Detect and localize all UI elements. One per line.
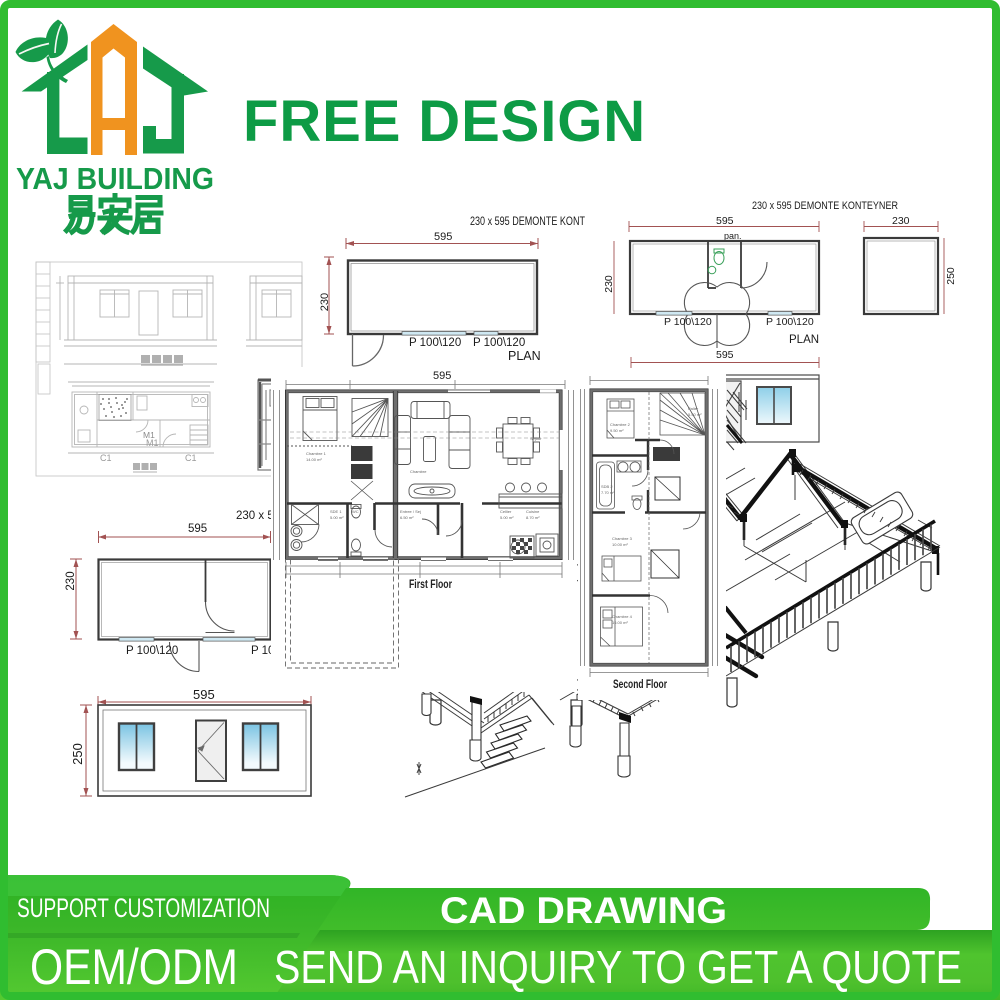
- svg-text:SDB 2: SDB 2: [601, 484, 613, 489]
- svg-text:P 100\120: P 100\120: [766, 316, 814, 328]
- svg-text:230 x 595 DEMONTE KONTEYNER: 230 x 595 DEMONTE KONTEYNER: [752, 200, 898, 212]
- svg-text:Entree / Sej: Entree / Sej: [400, 509, 421, 514]
- svg-text:Cellier: Cellier: [500, 509, 512, 514]
- svg-text:WC: WC: [352, 509, 359, 514]
- svg-text:P 100\120: P 100\120: [409, 337, 461, 349]
- svg-text:595: 595: [188, 523, 207, 535]
- svg-text:CAD DRAWING: CAD DRAWING: [440, 890, 727, 931]
- svg-text:C1: C1: [185, 453, 197, 463]
- svg-text:Chambre 3: Chambre 3: [612, 536, 633, 541]
- svg-text:PLAN: PLAN: [508, 349, 541, 363]
- svg-text:250: 250: [70, 743, 85, 765]
- svg-text:595: 595: [193, 687, 215, 702]
- svg-text:Chambre 1: Chambre 1: [306, 451, 327, 456]
- svg-text:OEM/ODM: OEM/ODM: [30, 939, 238, 995]
- svg-text:pan.: pan.: [724, 231, 742, 241]
- svg-text:595: 595: [433, 370, 451, 382]
- svg-text:230: 230: [65, 571, 77, 590]
- svg-text:16.00 m²: 16.00 m²: [612, 620, 628, 625]
- svg-text:Cuisine: Cuisine: [526, 509, 540, 514]
- svg-text:SDE 1: SDE 1: [330, 509, 342, 514]
- svg-text:YAJ BUILDING: YAJ BUILDING: [16, 161, 214, 196]
- svg-text:SEND AN INQUIRY TO GET A QUOTE: SEND AN INQUIRY TO GET A QUOTE: [274, 941, 962, 993]
- svg-text:Chambre 4: Chambre 4: [612, 614, 633, 619]
- svg-text:C1: C1: [100, 453, 112, 463]
- svg-text:230: 230: [892, 215, 910, 227]
- svg-text:SUPPORT CUSTOMIZATION: SUPPORT CUSTOMIZATION: [17, 893, 270, 923]
- svg-text:First Floor: First Floor: [409, 577, 452, 591]
- svg-text:10.00 m²: 10.00 m²: [612, 542, 628, 547]
- svg-text:6.50 m²: 6.50 m²: [400, 515, 414, 520]
- svg-text:PLAN: PLAN: [789, 334, 819, 346]
- svg-text:230: 230: [603, 275, 615, 293]
- svg-text:595: 595: [716, 349, 734, 361]
- svg-text:5.00 m²: 5.00 m²: [500, 515, 514, 520]
- svg-text:8.70 m²: 8.70 m²: [526, 515, 540, 520]
- svg-text:Chambre 2: Chambre 2: [610, 422, 631, 427]
- svg-text:5.50 m²: 5.50 m²: [688, 412, 702, 417]
- svg-text:Second Floor: Second Floor: [613, 677, 667, 691]
- svg-text:P 100\120: P 100\120: [473, 337, 525, 349]
- svg-text:7.70 m²: 7.70 m²: [601, 490, 615, 495]
- svg-text:P 100\120: P 100\120: [126, 645, 178, 657]
- svg-text:230 x 595 DEMONTE KONT: 230 x 595 DEMONTE KONT: [470, 216, 585, 228]
- svg-text:14.00 m²: 14.00 m²: [306, 457, 322, 462]
- svg-text:Sejour: Sejour: [530, 436, 542, 441]
- svg-text:595: 595: [716, 215, 734, 227]
- svg-text:595: 595: [434, 231, 452, 243]
- svg-text:M1: M1: [143, 430, 155, 440]
- svg-text:9.50 m²: 9.50 m²: [610, 428, 624, 433]
- svg-text:250: 250: [945, 267, 957, 285]
- svg-text:5.00 m²: 5.00 m²: [330, 515, 344, 520]
- svg-text:Palier: Palier: [688, 406, 699, 411]
- svg-text:P 100\120: P 100\120: [664, 316, 712, 328]
- svg-text:Chambre: Chambre: [410, 469, 427, 474]
